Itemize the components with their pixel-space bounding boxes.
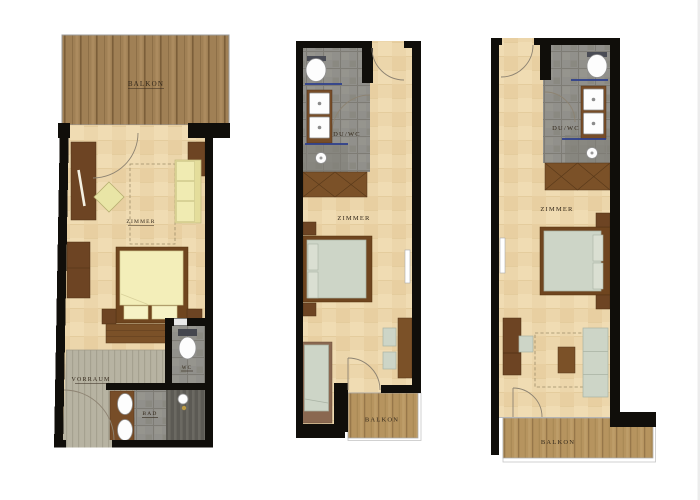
entry-threshold — [502, 38, 534, 45]
bed-pillow — [308, 244, 318, 270]
wc-label: WC — [182, 366, 192, 371]
toilet-tank — [178, 329, 197, 336]
sofa-cushion — [177, 162, 195, 181]
room-label: ZIMMER — [337, 215, 370, 222]
wardrobe — [71, 142, 96, 220]
shower-drain — [320, 157, 323, 160]
balcony-threshold — [348, 385, 381, 393]
armchair — [503, 318, 521, 375]
floorplan-room-a: DU/WC ZIMMER BALKON — [296, 41, 421, 441]
shower-fitting — [182, 406, 186, 410]
bed-mattress — [544, 231, 601, 291]
nightstand-left — [102, 309, 116, 324]
floorplan-sheet: BALKON ZIMMER VORRAUM WC BAD — [0, 0, 700, 500]
toilet-icon — [179, 337, 196, 359]
wc-door-opening — [174, 319, 187, 326]
desk — [398, 318, 412, 378]
floorplans-canvas: BALKON ZIMMER VORRAUM WC BAD — [0, 0, 700, 500]
nightstand-bottom — [596, 295, 610, 309]
side-cabinet — [67, 242, 90, 298]
bed-pillow — [124, 306, 148, 319]
nightstand-bottom — [303, 303, 316, 316]
floorplan-apartment: BALKON ZIMMER VORRAUM WC BAD — [54, 35, 230, 448]
faucet — [592, 122, 596, 126]
shower-wc-label: DU/WC — [333, 131, 361, 138]
toilet-icon — [306, 59, 326, 82]
balcony-label: BALKON — [128, 80, 164, 88]
faucet — [318, 102, 322, 106]
sofa — [583, 328, 608, 397]
single-bed — [302, 342, 332, 423]
bed-pillow — [593, 235, 603, 261]
balcony-label: BALKON — [365, 417, 399, 424]
sofa-cushion — [177, 182, 195, 201]
nightstand-top — [303, 222, 316, 235]
entry-threshold — [372, 41, 404, 48]
radiator — [500, 238, 505, 273]
bath-label: BAD — [142, 411, 157, 417]
radiator — [405, 250, 410, 283]
wardrobe — [303, 172, 367, 197]
sink — [118, 394, 133, 415]
balcony-label: BALKON — [541, 439, 575, 446]
bed-pillow — [308, 272, 318, 298]
chair — [519, 336, 533, 352]
hall-label: VORRAUM — [71, 377, 110, 383]
shower-head-icon — [178, 394, 188, 404]
bed-pillow — [152, 306, 177, 319]
double-bed — [116, 247, 188, 323]
balcony-deck — [348, 393, 418, 438]
side-table — [558, 347, 575, 373]
double-bed — [540, 227, 610, 295]
room-label: ZIMMER — [126, 219, 155, 225]
chair — [383, 352, 396, 369]
wardrobe — [545, 163, 610, 190]
bed-pillow — [593, 263, 603, 289]
sink — [118, 420, 133, 441]
shower-wc-label: DU/WC — [552, 125, 580, 132]
faucet — [592, 98, 596, 102]
entry-threshold — [66, 440, 112, 448]
room-label: ZIMMER — [540, 206, 573, 213]
shower-drain — [591, 152, 594, 155]
sofa — [175, 160, 201, 223]
dresser — [106, 324, 170, 343]
toilet-icon — [587, 55, 607, 78]
chair — [383, 328, 396, 346]
faucet — [318, 126, 322, 130]
sofa-cushion — [177, 202, 195, 222]
double-bed — [303, 236, 372, 302]
nightstand-top — [596, 213, 610, 227]
